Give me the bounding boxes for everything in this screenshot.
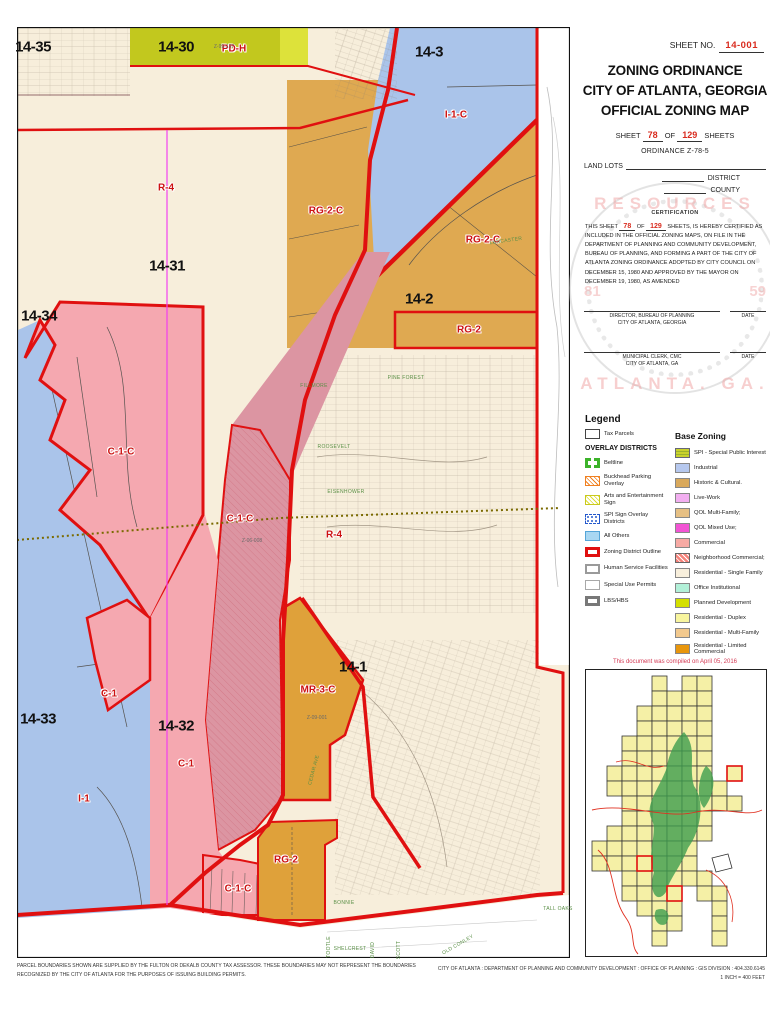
cert-sheet-value: 78 [619,223,635,231]
date-blank [730,342,766,353]
locator-grid-cell [697,871,712,886]
base-zone-8-row: Residential - Single Family [675,568,767,578]
locator-grid-cell [637,871,652,886]
sheet-mid: OF [665,131,675,140]
locator-grid-cell [637,826,652,841]
locator-grid-cell [667,721,682,736]
cert-text-1: THIS SHEET [585,224,618,230]
base-zone-2-label: Historic & Cultural. [694,480,742,486]
base-zone-11-label: Residential - Duplex [694,615,746,621]
date-blank [730,301,766,312]
overlay-special-use-label: Special Use Permits [604,582,656,588]
compiled-note: This document was compiled on April 05, … [582,659,768,665]
base-zone-1-row: Industrial [675,463,767,473]
date-caption: DATE [730,313,766,321]
sheet-no-value: 14-001 [719,40,764,53]
district-label: 14-3 [415,44,443,61]
sheet-no-label: SHEET NO. [670,40,716,50]
sheet-suffix: SHEETS [704,131,734,140]
district-label: 14-30 [158,39,194,56]
county-label: COUNTY [710,187,740,194]
overlay-districts-heading: OVERLAY DISTRICTS [585,445,669,452]
base-zone-3-swatch [675,493,690,503]
locator-grid-cell [697,676,712,691]
street-label: FILLMORE [300,383,327,389]
overlay-arts-swatch [585,495,600,505]
signature-block-2: MUNICIPAL CLERK, CMCCITY OF ATLANTA, GAD… [582,342,768,369]
locator-grid-cell [637,781,652,796]
legend-heading: Legend [585,414,767,425]
footer-credit-line: CITY OF ATLANTA : DEPARTMENT OF PLANNING… [405,965,765,974]
base-zone-13-swatch [675,644,690,654]
district-label: 14-34 [21,308,57,325]
base-zone-9-row: Office Institutional [675,583,767,593]
locator-tilted-cell [712,854,732,872]
street-label: ROOSEVELT [318,444,351,450]
locator-grid-cell [622,886,637,901]
overlay-arts-row: Arts and Entertainment Sign [585,493,669,506]
date-caption: DATE [730,354,766,362]
sheet-total: 129 [677,130,702,142]
locator-grid-cell [652,706,667,721]
legend: Legend Tax Parcels OVERLAY DISTRICTS Bel… [585,414,767,661]
overlay-human-service-swatch [585,564,600,574]
locator-grid-cell [682,706,697,721]
overlay-special-use-row: Special Use Permits [585,580,669,590]
street-label: CEDAR AVE [307,754,321,785]
street-label: OLD CONLEY [441,934,475,957]
overlay-buckhead-label: Buckhead Parking Overlay [604,474,669,487]
base-zone-7-swatch [675,553,690,563]
street-label: BONNIE [334,900,355,906]
locator-grid-cell [637,856,652,871]
certification-paragraph: THIS SHEET 78 OF 129 SHEETS, IS HEREBY C… [582,221,768,287]
ordinance-line: ORDINANCE Z-78-5 [582,148,768,155]
base-zone-0-swatch [675,448,690,458]
overlay-buckhead-swatch [585,476,600,486]
zone-label: I-1 [78,794,90,805]
overlay-spi-sign-label: SPI Sign Overlay Districts [604,512,669,525]
locator-grid-cell [712,886,727,901]
footer-credits: CITY OF ATLANTA : DEPARTMENT OF PLANNING… [405,965,765,983]
certification-heading: CERTIFICATION [582,210,768,216]
cert-sheet-total: 129 [646,223,666,231]
locator-grid-cell [622,856,637,871]
base-zone-3-label: Live-Work [694,495,720,501]
legend-base-column: Base Zoning SPI - Special Public Interes… [675,429,767,661]
signature-line: DIRECTOR, BUREAU OF PLANNINGCITY OF ATLA… [584,301,720,328]
tax-parcels-swatch [585,429,600,439]
locator-grid-cell [622,841,637,856]
signature-blocks: DIRECTOR, BUREAU OF PLANNINGCITY OF ATLA… [582,301,768,369]
locator-grid-cell [667,886,682,901]
zone-label: I-1-C [445,110,467,121]
overlay-lbs-hbs-row: LBS/HBS [585,596,669,606]
zone-label: RG-2-C [309,206,343,217]
locator-grid-cell [637,706,652,721]
overlay-beltline-row: Beltline [585,458,669,468]
locator-grid-cell [652,691,667,706]
overlay-beltline-swatch [585,458,600,468]
zone-label: PD-H [222,44,246,55]
district-blank [662,173,704,182]
locator-grid-cell [607,826,622,841]
locator-grid-cell [622,751,637,766]
base-zone-10-row: Planned Development [675,598,767,608]
locator-grid-cell [637,886,652,901]
overlay-human-service-row: Human Service Facilities [585,564,669,574]
base-zone-13-row: Residential - Limited Commercial [675,643,767,656]
base-zone-12-swatch [675,628,690,638]
locator-grid-cell [652,676,667,691]
base-zone-0-row: SPI - Special Public Interest [675,448,767,458]
locator-grid-cell [697,736,712,751]
base-zone-7-row: Neighborhood Commercial; [675,553,767,563]
zone-label: RG-2 [457,325,481,336]
locator-grid-cell [667,901,682,916]
locator-grid-cell [697,826,712,841]
base-zone-13-label: Residential - Limited Commercial [694,643,767,656]
district-label: 14-2 [405,291,433,308]
locator-grid-cell [652,751,667,766]
base-zone-8-label: Residential - Single Family [694,570,763,576]
overlay-all-others-label: All Others [604,533,629,539]
locator-grid-cell [637,736,652,751]
locator-grid-cell [712,931,727,946]
street-label: TALL OAKS [543,906,572,912]
locator-grid-cell [622,826,637,841]
locator-grid-cell [667,706,682,721]
zone-label: C-1 [178,759,194,770]
legend-overlay-column: Tax Parcels OVERLAY DISTRICTS BeltlineBu… [585,429,669,661]
sheet-count-line: SHEET 78 OF 129 SHEETS [582,130,768,140]
overlay-zoning-outline-row: Zoning District Outline [585,547,669,557]
base-zone-12-row: Residential - Multi-Family [675,628,767,638]
overlay-buckhead-row: Buckhead Parking Overlay [585,474,669,487]
locator-grid-cell [697,751,712,766]
locator-grid-cell [712,781,727,796]
locator-grid-cell [667,691,682,706]
locator-grid-cell [622,766,637,781]
locator-grid-cell [622,871,637,886]
overlay-arts-label: Arts and Entertainment Sign [604,493,669,506]
date-line: DATE [730,301,766,328]
overlay-special-use-swatch [585,580,600,590]
street-label: PINE FOREST [388,375,425,381]
street-label: DAVID [370,942,376,958]
base-zone-3-row: Live-Work [675,493,767,503]
signature-blank [584,301,720,312]
case-label: Z-99-137 [214,44,234,50]
cert-text-3: SHEETS, IS HEREBY CERTIFIED AS INCLUDED … [585,224,762,285]
locator-grid-cell [652,931,667,946]
signature-blank [584,342,720,353]
locator-grid-cell [622,781,637,796]
zone-label: C-1-C [227,514,254,525]
base-zone-11-swatch [675,613,690,623]
overlay-lbs-hbs-label: LBS/HBS [604,598,629,604]
locator-grid-cell [637,811,652,826]
locator-grid-cell [727,766,742,781]
district-label: 14-35 [15,39,51,56]
locator-grid-cell [667,916,682,931]
overlay-all-others-row: All Others [585,531,669,541]
street-label: EISENHOWER [327,489,364,495]
base-zone-5-row: QOL Mixed Use; [675,523,767,533]
locator-grid-cell [712,796,727,811]
zone-label: C-1 [101,689,117,700]
base-zone-9-swatch [675,583,690,593]
base-zone-4-row: QOL Multi-Family; [675,508,767,518]
locator-grid-cell [697,706,712,721]
sheet-prefix: SHEET [616,131,641,140]
locator-grid-cell [607,781,622,796]
signature-line: MUNICIPAL CLERK, CMCCITY OF ATLANTA, GA [584,342,720,369]
zone-label: MR-3-C [301,685,336,696]
locator-grid-cell [622,736,637,751]
district-label: 14-33 [20,711,56,728]
district-label: 14-1 [339,659,367,676]
locator-grid-cell [637,721,652,736]
overlay-lbs-hbs-swatch [585,596,600,606]
case-label: Z-09-001 [307,715,327,721]
street-label: SHELCREST [334,946,367,952]
zone-label: C-1-C [225,884,252,895]
title-line-2: CITY OF ATLANTA, GEORGIA [582,81,768,101]
base-zone-4-label: QOL Multi-Family; [694,510,741,516]
base-zone-5-swatch [675,523,690,533]
base-zone-6-label: Commercial [694,540,725,546]
zone-label: C-1-C [108,447,135,458]
base-zone-1-swatch [675,463,690,473]
base-zone-10-label: Planned Development [694,600,751,606]
base-zone-8-swatch [675,568,690,578]
overlay-spi-sign-swatch [585,514,600,524]
street-label: TOOTLE [326,936,332,958]
base-zone-6-swatch [675,538,690,548]
title-line-1: ZONING ORDINANCE [582,61,768,81]
locator-grid-cell [682,676,697,691]
locator-grid-cell [622,811,637,826]
locator-grid-cell [682,871,697,886]
signature-caption: MUNICIPAL CLERK, CMCCITY OF ATLANTA, GA [584,354,720,369]
title-block-panel: SHEET NO. 14-001 ZONING ORDINANCE CITY O… [582,40,768,369]
locator-grid-cell [637,901,652,916]
locator-grid-cell [682,691,697,706]
overlay-spi-sign-row: SPI Sign Overlay Districts [585,512,669,525]
base-zone-9-label: Office Institutional [694,585,740,591]
land-lots-label: LAND LOTS [584,163,623,170]
case-label: Z-06-008 [242,538,262,544]
base-zone-5-label: QOL Mixed Use; [694,525,737,531]
district-label: 14-32 [158,718,194,735]
sheet-value: 78 [643,130,663,142]
locator-grid-cell [727,796,742,811]
locator-grid-cell [652,736,667,751]
page-title: ZONING ORDINANCE CITY OF ATLANTA, GEORGI… [582,61,768,121]
base-zoning-heading: Base Zoning [675,431,767,441]
locator-grid-cell [652,721,667,736]
district-label: 14-31 [149,258,185,275]
date-line: DATE [730,342,766,369]
base-zone-2-swatch [675,478,690,488]
base-zone-7-label: Neighborhood Commercial; [694,555,765,561]
base-zone-2-row: Historic & Cultural. [675,478,767,488]
base-zone-6-row: Commercial [675,538,767,548]
locator-grid-cell [607,766,622,781]
zone-label: R-4 [326,530,342,541]
base-zone-10-swatch [675,598,690,608]
zone-label: R-4 [158,183,174,194]
land-lots-blank [626,161,766,170]
zone-label: RG-2 [274,855,298,866]
locator-grid-cell [592,841,607,856]
locator-grid-cell [637,766,652,781]
base-zone-1-label: Industrial [694,465,718,471]
county-blank [664,185,706,194]
locator-grid-cell [607,841,622,856]
zone-label: RG-2-C [466,235,500,246]
district-label: DISTRICT [708,175,740,182]
overlay-human-service-label: Human Service Facilities [604,565,668,571]
locator-grid-cell [682,856,697,871]
overlay-all-others-swatch [585,531,600,541]
locator-grid-cell [637,841,652,856]
overlay-zoning-outline-swatch [585,547,600,557]
street-label: SCOTT [396,941,402,959]
footer-disclaimer: PARCEL BOUNDARIES SHOWN ARE SUPPLIED BY … [17,962,417,979]
locator-map-svg [586,670,766,956]
locator-grid-cell [697,691,712,706]
overlay-zoning-outline-label: Zoning District Outline [604,549,661,555]
locator-grid-cell [712,901,727,916]
tax-parcels-label: Tax Parcels [604,431,634,437]
footer-scale-line: 1 INCH = 400 FEET [405,974,765,983]
overlay-beltline-label: Beltline [604,460,623,466]
locator-grid-cell [697,886,712,901]
locator-grid-cell [712,916,727,931]
base-zone-12-label: Residential - Multi-Family [694,630,759,636]
cert-text-2: OF [637,224,645,230]
signature-block-1: DIRECTOR, BUREAU OF PLANNINGCITY OF ATLA… [582,301,768,328]
locator-grid-cell [697,721,712,736]
base-zone-11-row: Residential - Duplex [675,613,767,623]
zoning-map-page: 14-3514-3014-314-3114-214-3414-3314-3214… [0,0,770,1024]
locator-map [585,669,767,957]
title-line-3: OFFICIAL ZONING MAP [582,101,768,121]
signature-caption: DIRECTOR, BUREAU OF PLANNINGCITY OF ATLA… [584,313,720,328]
base-zone-0-label: SPI - Special Public Interest [694,450,766,456]
street-label: LANCASTER [489,236,522,246]
base-zone-4-swatch [675,508,690,518]
